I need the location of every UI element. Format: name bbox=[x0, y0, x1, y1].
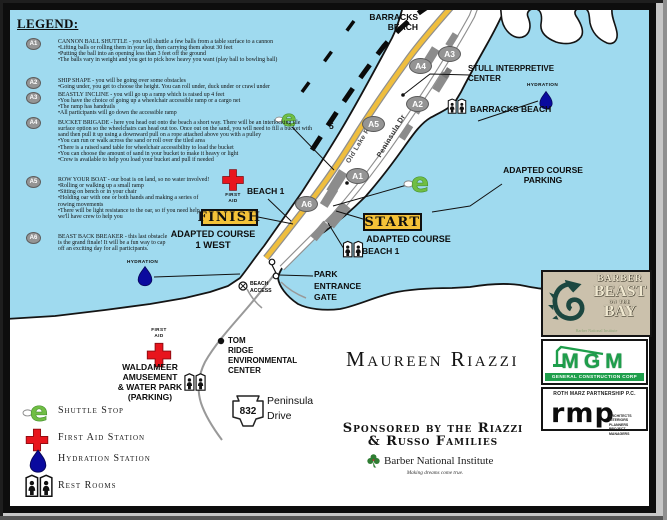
finish-banner: FINISH bbox=[201, 209, 258, 226]
course-marker-a4: A4 bbox=[409, 58, 432, 74]
label-barracks-beach-shore: BARRACKS BEACH bbox=[470, 104, 551, 114]
label-drive: Drive bbox=[267, 410, 292, 422]
legend-item-bullet: •All participants will go down the acces… bbox=[58, 110, 314, 116]
key-label-first-aid: First Aid Station bbox=[58, 432, 145, 443]
legend-badge-a2: A2 bbox=[26, 77, 41, 89]
shamrock-icon bbox=[366, 452, 381, 469]
institute-tagline: Making dreams come true. bbox=[380, 470, 490, 476]
beast-dragon-icon bbox=[546, 275, 592, 335]
label-hydration-stull: HYDRATION bbox=[527, 82, 558, 88]
athlete-name: Maureen Riazzi bbox=[335, 347, 530, 372]
label-barracks-beach-top: BARRACKS BEACH bbox=[352, 12, 418, 32]
beast-on-the-bay-logo: BARBER BEAST ON THE BAY Barber National … bbox=[541, 270, 652, 337]
mgm-logo: MGM GENERAL CONSTRUCTION CORP bbox=[541, 339, 648, 385]
course-marker-a6: A6 bbox=[295, 196, 318, 212]
label-first-aid-beach1: FIRST AID bbox=[221, 192, 245, 203]
key-label-hydration: Hydration Station bbox=[58, 453, 151, 464]
legend-item-bullet: •Crew is available to help you load your… bbox=[58, 157, 316, 163]
beast-logo-subtext: Barber National Institute bbox=[543, 328, 650, 333]
sponsored-line-2: & Russo Families bbox=[328, 434, 538, 449]
label-beach-1-lower: BEACH 1 bbox=[362, 246, 399, 256]
legend-item-bullet: •There will be light resistance to the o… bbox=[58, 208, 210, 220]
legend-item-a2: SHIP SHAPE - you will be going over some… bbox=[58, 78, 314, 90]
label-beach-access: BEACH ACCESS bbox=[250, 281, 272, 294]
legend-item-a6: BEAST BACK BREAKER - this last obstacle … bbox=[58, 234, 172, 252]
label-stull-center: STULL INTERPRETIVE CENTER bbox=[468, 64, 554, 83]
legend-item-title: BUCKET BRIGADE - here you head out onto … bbox=[58, 120, 316, 138]
legend-item-bullet: •The balls vary in weight and you get to… bbox=[58, 57, 314, 63]
legend-badge-a6: A6 bbox=[26, 232, 41, 244]
legend-item-a3: BEASTLY INCLINE - you will go up a ramp … bbox=[58, 92, 314, 117]
start-banner: START bbox=[363, 213, 422, 231]
legend-title: LEGEND: bbox=[17, 16, 78, 32]
label-waldameer: WALDAMEER AMUSEMENT & WATER PARK (PARKIN… bbox=[110, 362, 190, 402]
label-hydration-west: HYDRATION bbox=[127, 259, 158, 265]
legend-item-bullet: •Holding oar with one or both hands and … bbox=[58, 195, 210, 207]
rmp-logo: ROTH MARZ PARTNERSHIP P.C. rmp ARCHITECT… bbox=[541, 387, 648, 431]
rmp-services: ARCHITECTS INTERIORS PLANNERS PROJECT MA… bbox=[609, 414, 646, 436]
label-first-aid-waldameer: FIRST AID bbox=[147, 327, 171, 338]
label-peninsula: Peninsula bbox=[267, 395, 313, 407]
key-label-rest-rooms: Rest Rooms bbox=[58, 480, 117, 491]
legend-item-title: BEAST BACK BREAKER - this last obstacle … bbox=[58, 234, 172, 252]
screenshot-edge-bottom bbox=[0, 516, 667, 520]
label-finish-adapted-course: ADAPTED COURSE bbox=[169, 229, 257, 239]
course-marker-a2: A2 bbox=[406, 96, 429, 112]
legend-item-a4: BUCKET BRIGADE - here you head out onto … bbox=[58, 120, 316, 163]
legend-badge-a1: A1 bbox=[26, 38, 41, 50]
key-label-shuttle-stop: Shuttle Stop bbox=[58, 405, 124, 416]
label-park-entrance-gate: PARK ENTRANCE GATE bbox=[314, 269, 361, 304]
barber-national-institute: Barber National Institute bbox=[366, 452, 493, 469]
label-adapted-course-parking: ADAPTED COURSE PARKING bbox=[498, 165, 588, 185]
label-beach-1: BEACH 1 bbox=[247, 186, 284, 196]
label-start-adapted-course: ADAPTED COURSE bbox=[366, 234, 451, 244]
course-marker-a5: A5 bbox=[362, 116, 385, 132]
screenshot-edge-right bbox=[663, 0, 667, 520]
legend-badge-a3: A3 bbox=[26, 92, 41, 104]
course-marker-a1: A1 bbox=[346, 168, 369, 184]
course-marker-a3: A3 bbox=[438, 46, 461, 62]
legend-item-a5: ROW YOUR BOAT - our boat is on land, so … bbox=[58, 177, 210, 220]
mile-marker-5: 5 bbox=[329, 121, 334, 131]
legend-badge-a4: A4 bbox=[26, 117, 41, 129]
legend-badge-a5: A5 bbox=[26, 176, 41, 188]
label-tom-ridge-center: TOM RIDGE ENVIRONMENTAL CENTER bbox=[228, 336, 297, 376]
legend-item-bullet: •Going under, you get to choose the heig… bbox=[58, 84, 314, 90]
legend-item-a1: CANNON BALL SHUTTLE - you will shuttle a… bbox=[58, 39, 314, 64]
label-finish-1-west: 1 WEST bbox=[169, 241, 257, 251]
